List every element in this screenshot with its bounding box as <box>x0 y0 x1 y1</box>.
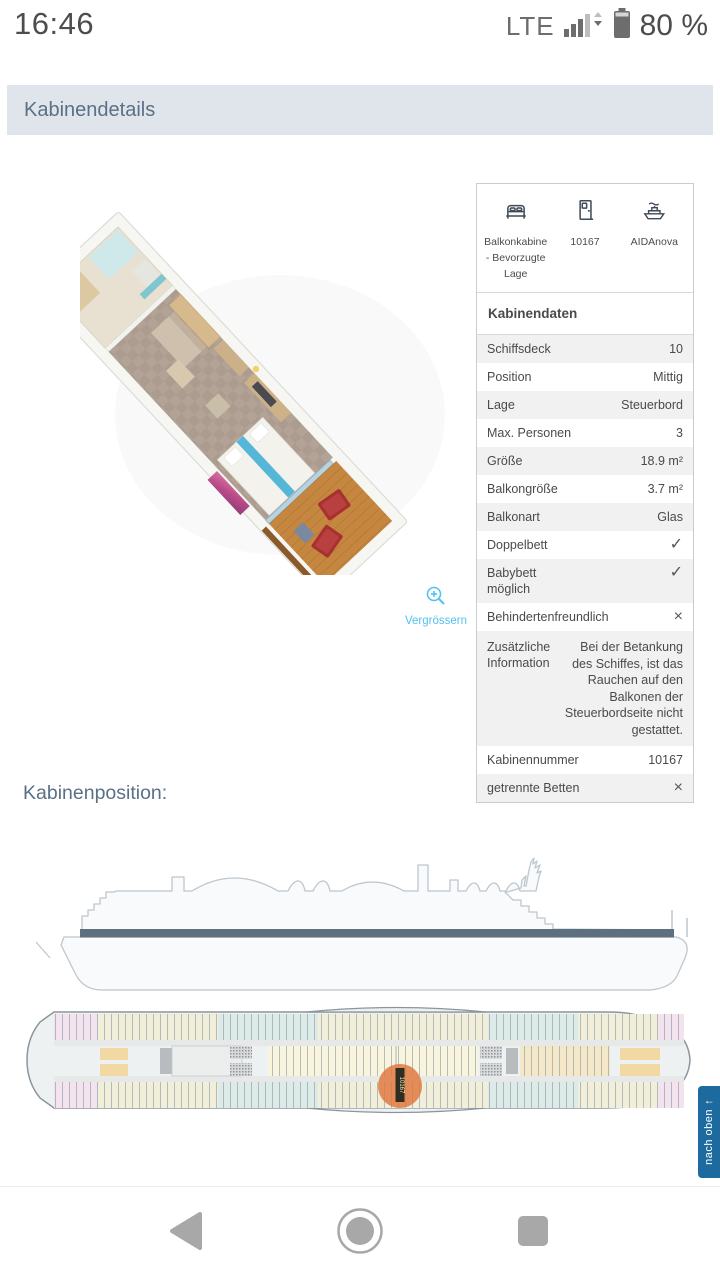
row-label: Balkongröße <box>487 481 558 497</box>
table-row: Balkongröße 3.7 m² <box>477 475 693 503</box>
summary-cabin-type: Balkonkabine - Bevorzugte Lage <box>481 197 550 282</box>
table-row: Schiffsdeck 10 <box>477 335 693 363</box>
table-row: Behindertenfreundlich × <box>477 603 693 631</box>
page-header: Kabinendetails <box>7 85 713 135</box>
cabin-3d-illustration <box>80 185 470 575</box>
up-arrow-icon: ↑ <box>703 1099 715 1105</box>
cabin-data-table: Schiffsdeck 10 Position Mittig Lage Steu… <box>477 335 693 802</box>
status-icons: LTE 80 % <box>506 8 708 44</box>
cabin-3d-rendering[interactable] <box>80 185 470 575</box>
table-row: Babybett möglich ✓ <box>477 559 693 603</box>
recents-square-icon <box>516 1214 550 1253</box>
back-to-top-button[interactable]: nach oben ↑ <box>698 1086 720 1178</box>
row-value: 10167 <box>579 752 683 768</box>
summary-ship-name: AIDAnova <box>620 197 689 282</box>
row-value: 3.7 m² <box>558 481 683 497</box>
status-bar: 16:46 LTE 80 % <box>0 0 720 62</box>
cross-icon: × <box>579 780 683 796</box>
row-label: Behindertenfreundlich <box>487 609 609 625</box>
highlighted-deck-band <box>80 929 674 938</box>
row-label: Doppelbett <box>487 537 547 553</box>
check-icon: ✓ <box>547 537 683 553</box>
page-title: Kabinendetails <box>7 99 155 122</box>
ship-silhouette <box>24 846 698 1004</box>
home-circle-icon <box>335 1206 385 1261</box>
row-label: Max. Personen <box>487 425 571 441</box>
row-label: Balkonart <box>487 509 540 525</box>
bed-icon <box>502 197 530 228</box>
row-value: 18.9 m² <box>522 453 683 469</box>
back-to-top-label: nach oben <box>703 1109 715 1165</box>
row-label: Zusätzliche Information <box>487 639 550 671</box>
enlarge-label: Vergrössern <box>392 615 480 627</box>
table-row: Position Mittig <box>477 363 693 391</box>
screen: { "status_bar": { "time": "16:46", "netw… <box>0 0 720 1280</box>
cabin-number-label: 10167 <box>568 235 601 251</box>
row-label: Position <box>487 369 531 385</box>
summary-cabin-number: 10167 <box>550 197 619 282</box>
battery-icon <box>613 8 631 44</box>
nav-home-button[interactable] <box>315 1187 405 1280</box>
cross-icon: × <box>609 609 683 625</box>
cabin-info-card: Balkonkabine - Bevorzugte Lage 10167 <box>476 183 694 803</box>
clock: 16:46 <box>14 6 94 42</box>
section-title: Kabinendaten <box>477 293 693 335</box>
ship-name-label: AIDAnova <box>629 235 680 251</box>
network-type-label: LTE <box>506 11 555 42</box>
table-row: Balkonart Glas <box>477 503 693 531</box>
row-value: 3 <box>571 425 683 441</box>
enlarge-image-link[interactable]: Vergrössern <box>392 584 480 627</box>
row-value: Steuerbord <box>515 397 683 413</box>
nav-back-button[interactable] <box>141 1187 231 1280</box>
table-row: Zusätzliche Information Bei der Betankun… <box>477 631 693 746</box>
table-row: Lage Steuerbord <box>477 391 693 419</box>
table-row: Größe 18.9 m² <box>477 447 693 475</box>
row-label: Schiffsdeck <box>487 341 551 357</box>
table-row: getrennte Betten × <box>477 774 693 802</box>
signal-strength-icon <box>564 9 604 44</box>
row-label: Babybett möglich <box>487 565 565 597</box>
row-value: 10 <box>551 341 683 357</box>
battery-percent-label: 80 % <box>640 9 708 43</box>
row-label: Lage <box>487 397 515 413</box>
row-value: Mittig <box>531 369 683 385</box>
row-value: Glas <box>540 509 683 525</box>
table-row: Max. Personen 3 <box>477 419 693 447</box>
cabin-summary: Balkonkabine - Bevorzugte Lage 10167 <box>477 184 693 292</box>
row-label: Größe <box>487 453 522 469</box>
row-label: Kabinennummer <box>487 752 579 768</box>
table-row: Kabinennummer 10167 <box>477 746 693 774</box>
deck-plan[interactable]: 10167 <box>20 1002 696 1120</box>
magnifier-plus-icon <box>424 595 448 612</box>
check-icon: ✓ <box>565 565 683 581</box>
back-triangle-icon <box>169 1211 203 1256</box>
ship-icon <box>640 197 668 228</box>
nav-recents-button[interactable] <box>488 1187 578 1280</box>
table-row: Doppelbett ✓ <box>477 531 693 559</box>
row-value: Bei der Betankung des Schiffes, ist das … <box>550 639 683 738</box>
marker-cabin-number: 10167 <box>398 1077 404 1094</box>
door-icon <box>572 197 598 228</box>
android-navigation-bar <box>0 1187 720 1280</box>
cabin-type-label: Balkonkabine - Bevorzugte Lage <box>481 235 550 282</box>
cabin-position-title: Kabinenposition: <box>23 782 167 805</box>
row-label: getrennte Betten <box>487 780 579 796</box>
